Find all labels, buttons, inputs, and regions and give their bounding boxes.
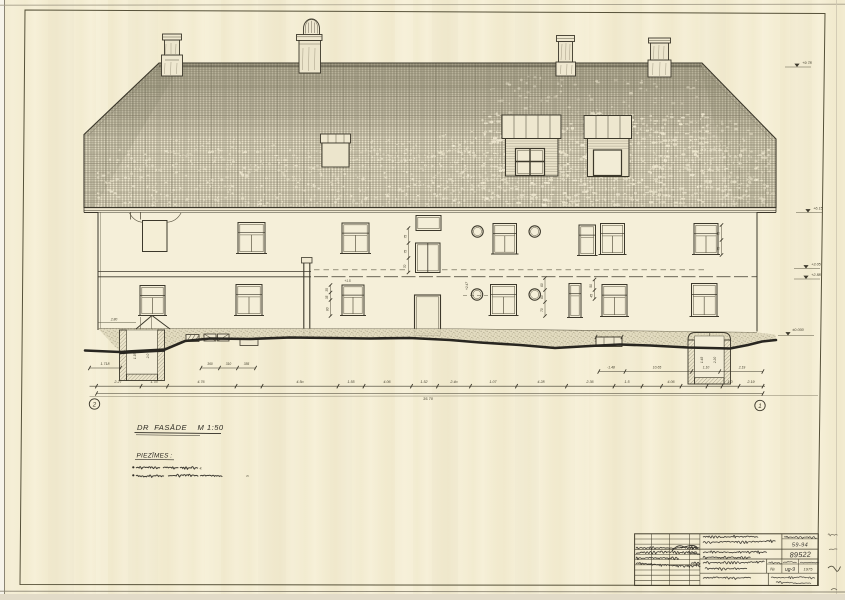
svg-text:75: 75 — [716, 232, 720, 236]
svg-text:4.76: 4.76 — [197, 380, 205, 384]
svg-text:+3.05: +3.05 — [811, 262, 821, 266]
svg-text:2: 2 — [92, 401, 97, 408]
svg-text:PIEZĪMES :: PIEZĪMES : — [137, 452, 173, 460]
svg-text:1.7o: 1.7o — [150, 380, 157, 384]
svg-text:2.80: 2.80 — [110, 318, 118, 322]
svg-text:60: 60 — [540, 295, 544, 299]
svg-text:75: 75 — [403, 235, 407, 239]
svg-text:1975: 1975 — [804, 566, 814, 571]
svg-text:2.4o: 2.4o — [449, 380, 457, 384]
svg-text:+2.47: +2.47 — [465, 282, 469, 290]
svg-text:1.10: 1.10 — [703, 366, 710, 370]
svg-text:59-94: 59-94 — [792, 543, 808, 549]
svg-text:1.55: 1.55 — [347, 380, 355, 384]
svg-text:35.70: 35.70 — [423, 396, 434, 401]
svg-text:±0.000: ±0.000 — [792, 328, 804, 332]
svg-text:360: 360 — [207, 362, 213, 366]
svg-text:80: 80 — [325, 307, 329, 311]
svg-text:2.36: 2.36 — [585, 380, 594, 384]
svg-text:-1.48: -1.48 — [607, 366, 615, 370]
svg-text:89522: 89522 — [790, 550, 812, 560]
svg-text:n.: n. — [247, 474, 250, 478]
svg-text:2.20: 2.20 — [713, 357, 717, 364]
svg-text:60: 60 — [540, 283, 544, 287]
svg-text:2.19: 2.19 — [746, 380, 754, 384]
svg-text:2.19: 2.19 — [738, 366, 746, 370]
svg-text:4.28: 4.28 — [537, 380, 545, 384]
svg-text:75: 75 — [403, 250, 407, 254]
svg-text:DR FASĀDE M 1:50: DR FASĀDE M 1:50 — [137, 423, 224, 432]
svg-text:4.: 4. — [200, 467, 203, 471]
svg-text:1.48: 1.48 — [700, 357, 704, 363]
svg-text:45: 45 — [589, 294, 593, 298]
svg-text:2.0: 2.0 — [146, 354, 150, 360]
svg-text:70: 70 — [540, 308, 544, 312]
svg-text:1.718: 1.718 — [101, 362, 110, 366]
svg-text:35: 35 — [325, 288, 329, 292]
svg-text:1: 1 — [758, 403, 761, 410]
svg-text:1.35: 1.35 — [133, 353, 137, 359]
svg-text:+1.5: +1.5 — [344, 279, 351, 283]
svg-text:4.5o: 4.5o — [296, 380, 303, 384]
svg-text:310: 310 — [226, 362, 232, 366]
svg-text:70: 70 — [403, 264, 407, 268]
svg-text:75: 75 — [716, 247, 720, 251]
svg-text:+9.78: +9.78 — [802, 61, 812, 65]
svg-text:35: 35 — [325, 295, 329, 299]
svg-text:355: 355 — [244, 362, 250, 366]
svg-text:№: № — [770, 567, 775, 572]
svg-text:50: 50 — [589, 284, 593, 288]
svg-text:4.06: 4.06 — [667, 380, 675, 384]
svg-text:+2.88: +2.88 — [811, 273, 821, 277]
svg-text:2.27: 2.27 — [113, 380, 122, 384]
svg-text:ug-9: ug-9 — [785, 567, 795, 573]
svg-text:1.07: 1.07 — [489, 380, 497, 384]
svg-text:1.52: 1.52 — [420, 380, 427, 384]
svg-text:10.65: 10.65 — [653, 366, 662, 370]
svg-text:4.06: 4.06 — [383, 380, 391, 384]
svg-text:+6.15: +6.15 — [813, 206, 823, 210]
